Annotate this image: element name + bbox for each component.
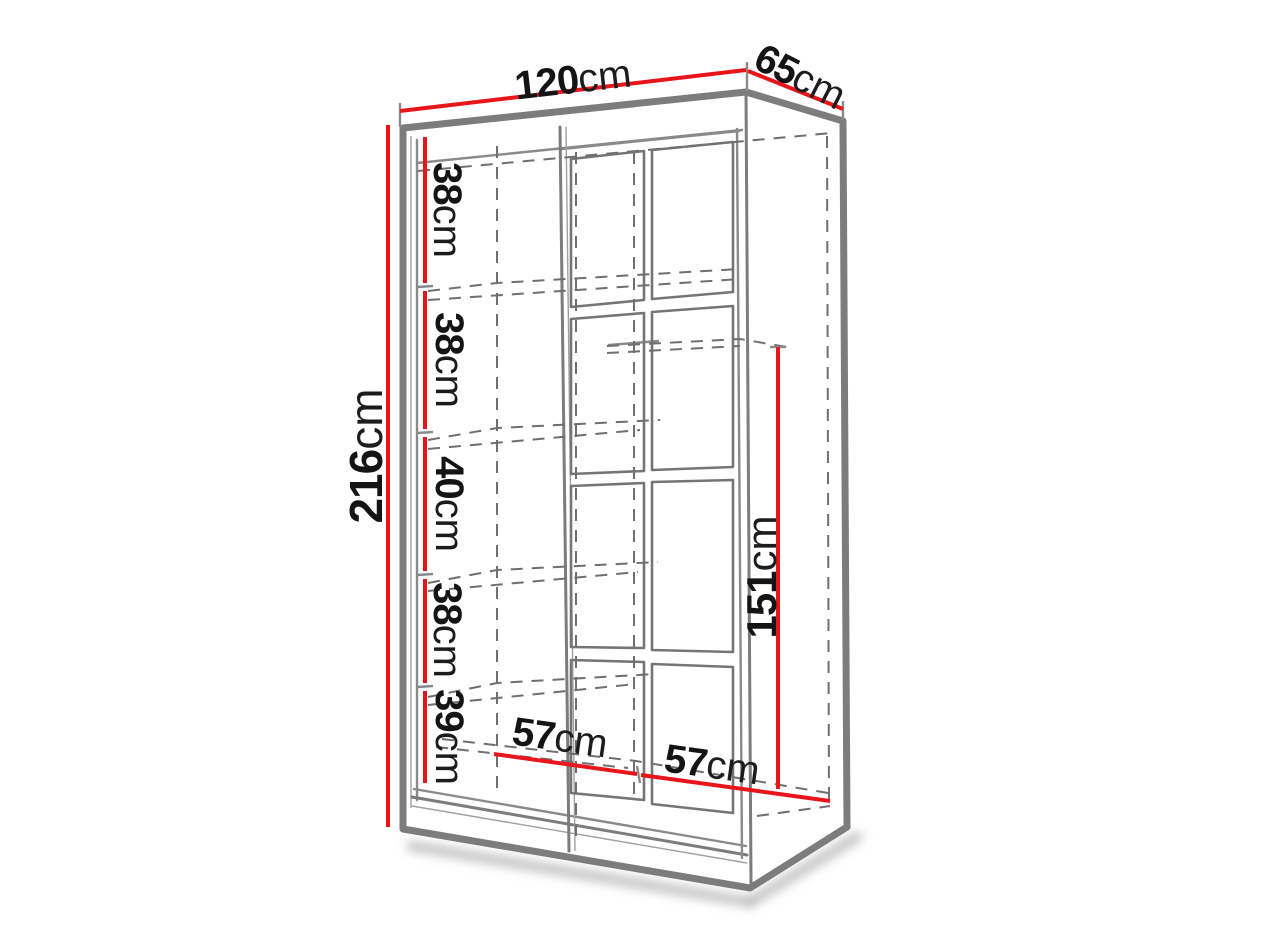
unit-label: cm: [427, 355, 471, 408]
compartment-width-value: 57: [509, 710, 557, 759]
label-width: 120cm: [512, 52, 633, 109]
unit-label: cm: [425, 625, 469, 678]
label-shelf-gap-4: 38cm: [425, 582, 469, 678]
unit-label: cm: [576, 52, 634, 102]
shelf-gap-value: 38: [425, 162, 469, 205]
unit-label: cm: [425, 205, 469, 258]
wardrobe-dimension-diagram: 120cm 65cm 216cm 151cm 38cm 38cm 40cm 38…: [0, 0, 1261, 945]
unit-label: cm: [704, 742, 763, 793]
unit-label: cm: [340, 388, 392, 449]
shelf-gap-value: 40: [427, 456, 471, 499]
shelf-gap-value: 38: [425, 582, 469, 625]
label-height: 216cm: [340, 388, 392, 523]
label-shelf-gap-3: 40cm: [427, 456, 471, 552]
label-shelf-gap-1: 38cm: [425, 162, 469, 258]
label-shelf-gap-5: 39cm: [427, 689, 471, 785]
unit-label: cm: [427, 732, 471, 785]
unit-label: cm: [552, 715, 611, 766]
width-value: 120: [512, 58, 580, 109]
unit-label: cm: [738, 515, 785, 571]
label-inner-height: 151cm: [738, 515, 785, 638]
shelf-gap-value: 39: [427, 689, 471, 732]
shelf-gap-value: 38: [427, 312, 471, 355]
height-value: 216: [340, 450, 392, 524]
diagram-canvas: 120cm 65cm 216cm 151cm 38cm 38cm 40cm 38…: [0, 0, 1261, 945]
unit-label: cm: [427, 499, 471, 552]
compartment-width-value: 57: [661, 737, 709, 786]
inner-height-value: 151: [738, 571, 785, 639]
label-shelf-gap-2: 38cm: [427, 312, 471, 408]
